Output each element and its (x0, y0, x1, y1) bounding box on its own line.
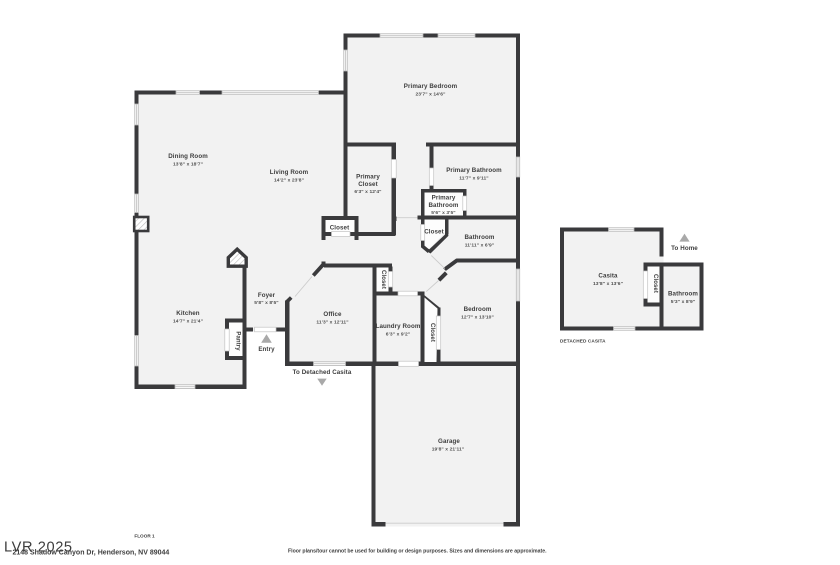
svg-text:FLOOR 1: FLOOR 1 (134, 534, 155, 539)
svg-text:12'7" x 13'10": 12'7" x 13'10" (461, 315, 494, 321)
svg-text:13'8" x 13'6": 13'8" x 13'6" (593, 281, 623, 287)
svg-text:Kitchen: Kitchen (176, 310, 200, 317)
svg-text:Foyer: Foyer (258, 292, 276, 299)
svg-text:Living Room: Living Room (270, 169, 309, 176)
svg-text:To Home: To Home (671, 245, 698, 252)
svg-text:Primary Bathroom: Primary Bathroom (446, 167, 502, 174)
svg-text:11'7" x 9'11": 11'7" x 9'11" (459, 176, 488, 182)
svg-text:23'7" x 14'6": 23'7" x 14'6" (415, 92, 445, 98)
svg-text:Pantry: Pantry (235, 331, 241, 351)
svg-text:Floor plans/tour cannot be use: Floor plans/tour cannot be used for buil… (288, 549, 547, 555)
svg-text:Closet: Closet (429, 323, 435, 342)
svg-text:Closet: Closet (330, 224, 350, 231)
svg-text:Garage: Garage (438, 438, 460, 445)
svg-text:6'3" x 12'4": 6'3" x 12'4" (354, 189, 381, 195)
svg-text:Office: Office (323, 311, 342, 318)
svg-text:Bathroom: Bathroom (668, 291, 698, 298)
svg-text:Laundry Room: Laundry Room (376, 323, 421, 330)
svg-text:Primary: Primary (356, 174, 380, 181)
svg-text:Entry: Entry (258, 346, 275, 353)
svg-text:2148 Shadow Canyon Dr, Henders: 2148 Shadow Canyon Dr, Henderson, NV 890… (13, 550, 170, 557)
svg-text:6'3" x 9'2": 6'3" x 9'2" (386, 332, 410, 338)
svg-text:13'8" x 18'7": 13'8" x 18'7" (173, 162, 203, 168)
svg-text:5'8" x 8'5": 5'8" x 8'5" (254, 300, 278, 306)
svg-text:11'3" x 12'11": 11'3" x 12'11" (316, 320, 348, 326)
svg-text:Closet: Closet (380, 270, 386, 289)
svg-text:Primary Bedroom: Primary Bedroom (404, 83, 458, 90)
svg-text:Bedroom: Bedroom (464, 306, 492, 313)
svg-text:Bathroom: Bathroom (428, 202, 458, 209)
svg-text:Dining Room: Dining Room (168, 153, 208, 160)
svg-text:To Detached Casita: To Detached Casita (293, 369, 352, 376)
svg-text:19'8" x 21'11": 19'8" x 21'11" (432, 447, 465, 453)
svg-text:Primary: Primary (432, 195, 456, 202)
svg-text:Closet: Closet (424, 228, 444, 235)
svg-text:11'11" x 6'9": 11'11" x 6'9" (465, 243, 494, 249)
svg-text:Closet: Closet (358, 181, 378, 188)
svg-text:5'6" x 3'5": 5'6" x 3'5" (431, 210, 455, 216)
svg-text:Closet: Closet (652, 274, 658, 293)
svg-text:14'2" x 23'8": 14'2" x 23'8" (274, 178, 304, 184)
svg-text:DETACHED CASITA: DETACHED CASITA (560, 339, 606, 344)
svg-text:Bathroom: Bathroom (464, 234, 494, 241)
svg-text:5'3" x 8'9": 5'3" x 8'9" (671, 299, 695, 305)
svg-text:14'7" x 21'4": 14'7" x 21'4" (173, 319, 203, 325)
svg-text:Casita: Casita (598, 273, 618, 280)
